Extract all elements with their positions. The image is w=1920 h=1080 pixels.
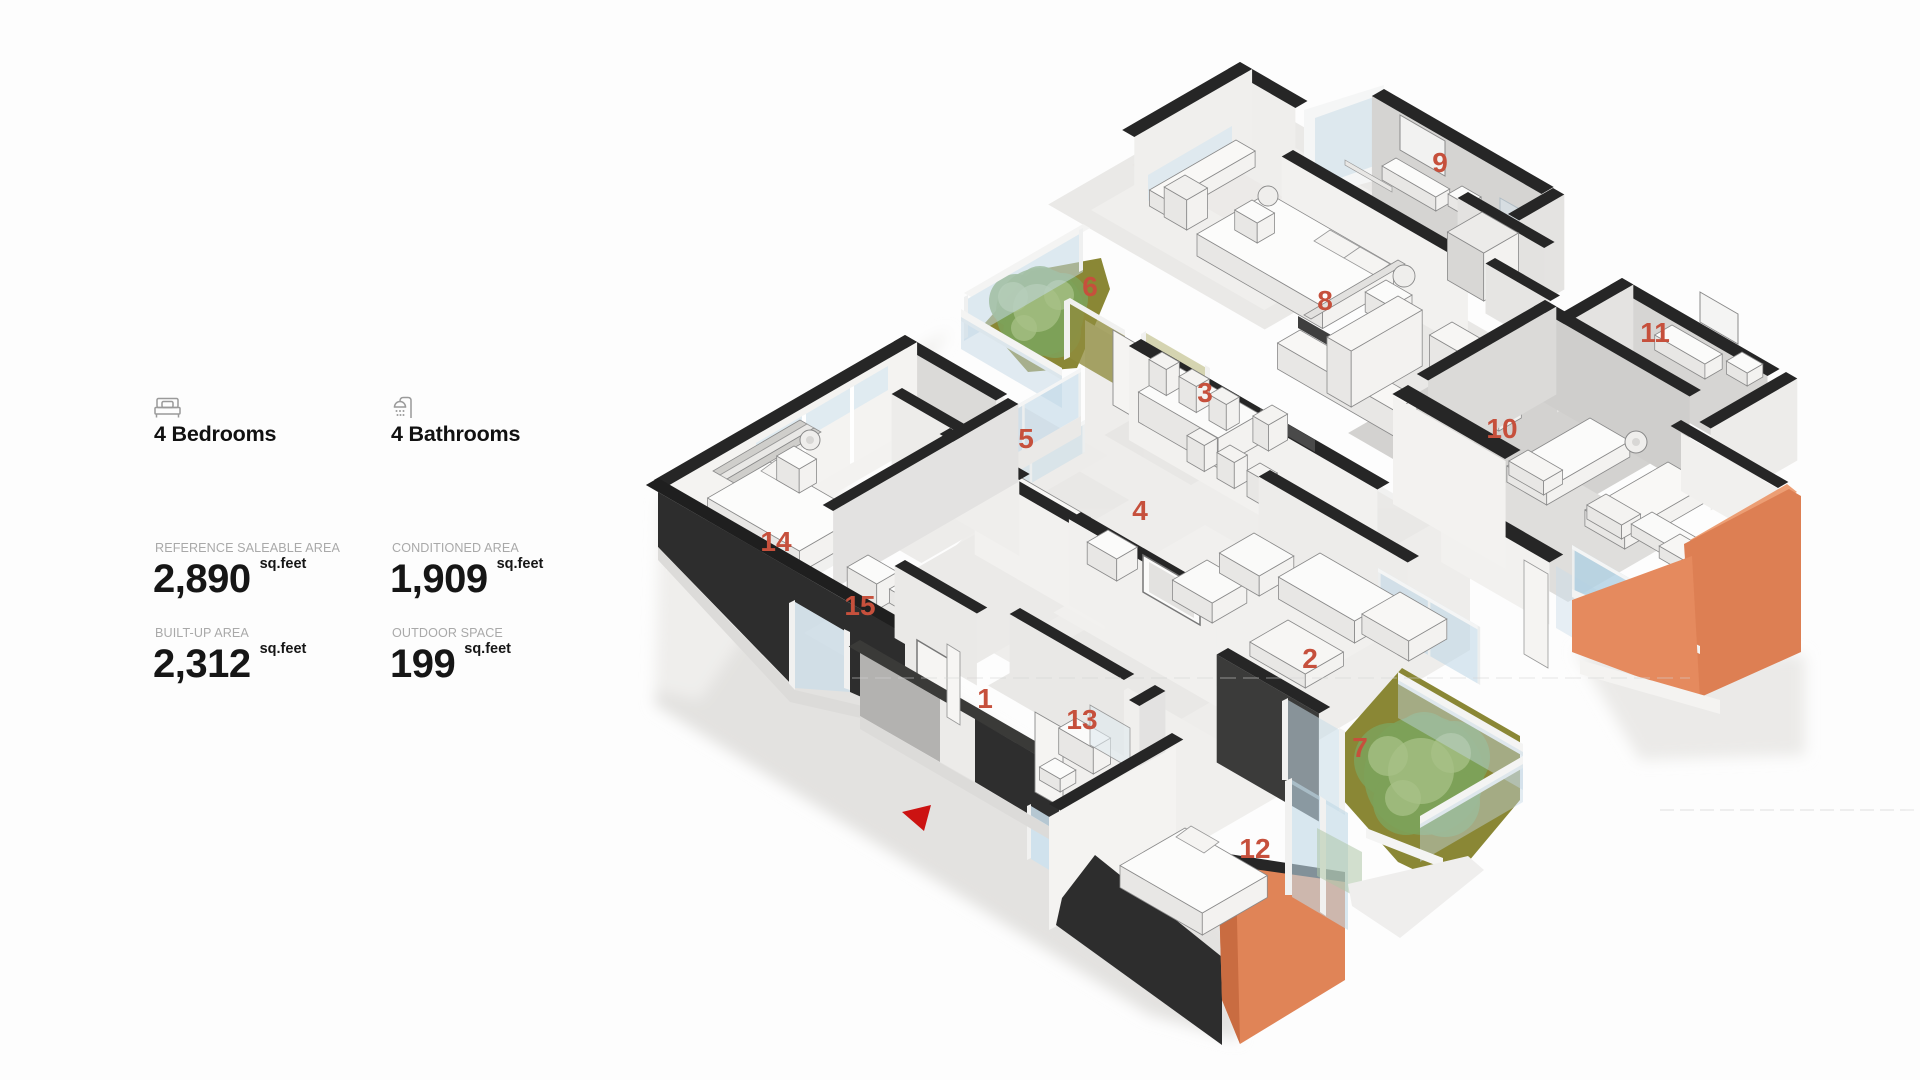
svg-text:6: 6 [1082,271,1098,302]
svg-text:8: 8 [1317,285,1333,316]
svg-text:9: 9 [1432,147,1448,178]
svg-text:13: 13 [1066,704,1097,735]
svg-text:14: 14 [760,526,792,557]
svg-text:3: 3 [1197,377,1213,408]
svg-text:11: 11 [1640,317,1670,348]
svg-text:15: 15 [844,590,875,621]
svg-text:10: 10 [1486,413,1517,444]
svg-text:7: 7 [1352,732,1368,763]
svg-text:1: 1 [977,683,993,714]
svg-text:2: 2 [1302,643,1318,674]
svg-text:5: 5 [1018,423,1034,454]
svg-text:12: 12 [1239,833,1270,864]
svg-text:4: 4 [1132,495,1148,526]
